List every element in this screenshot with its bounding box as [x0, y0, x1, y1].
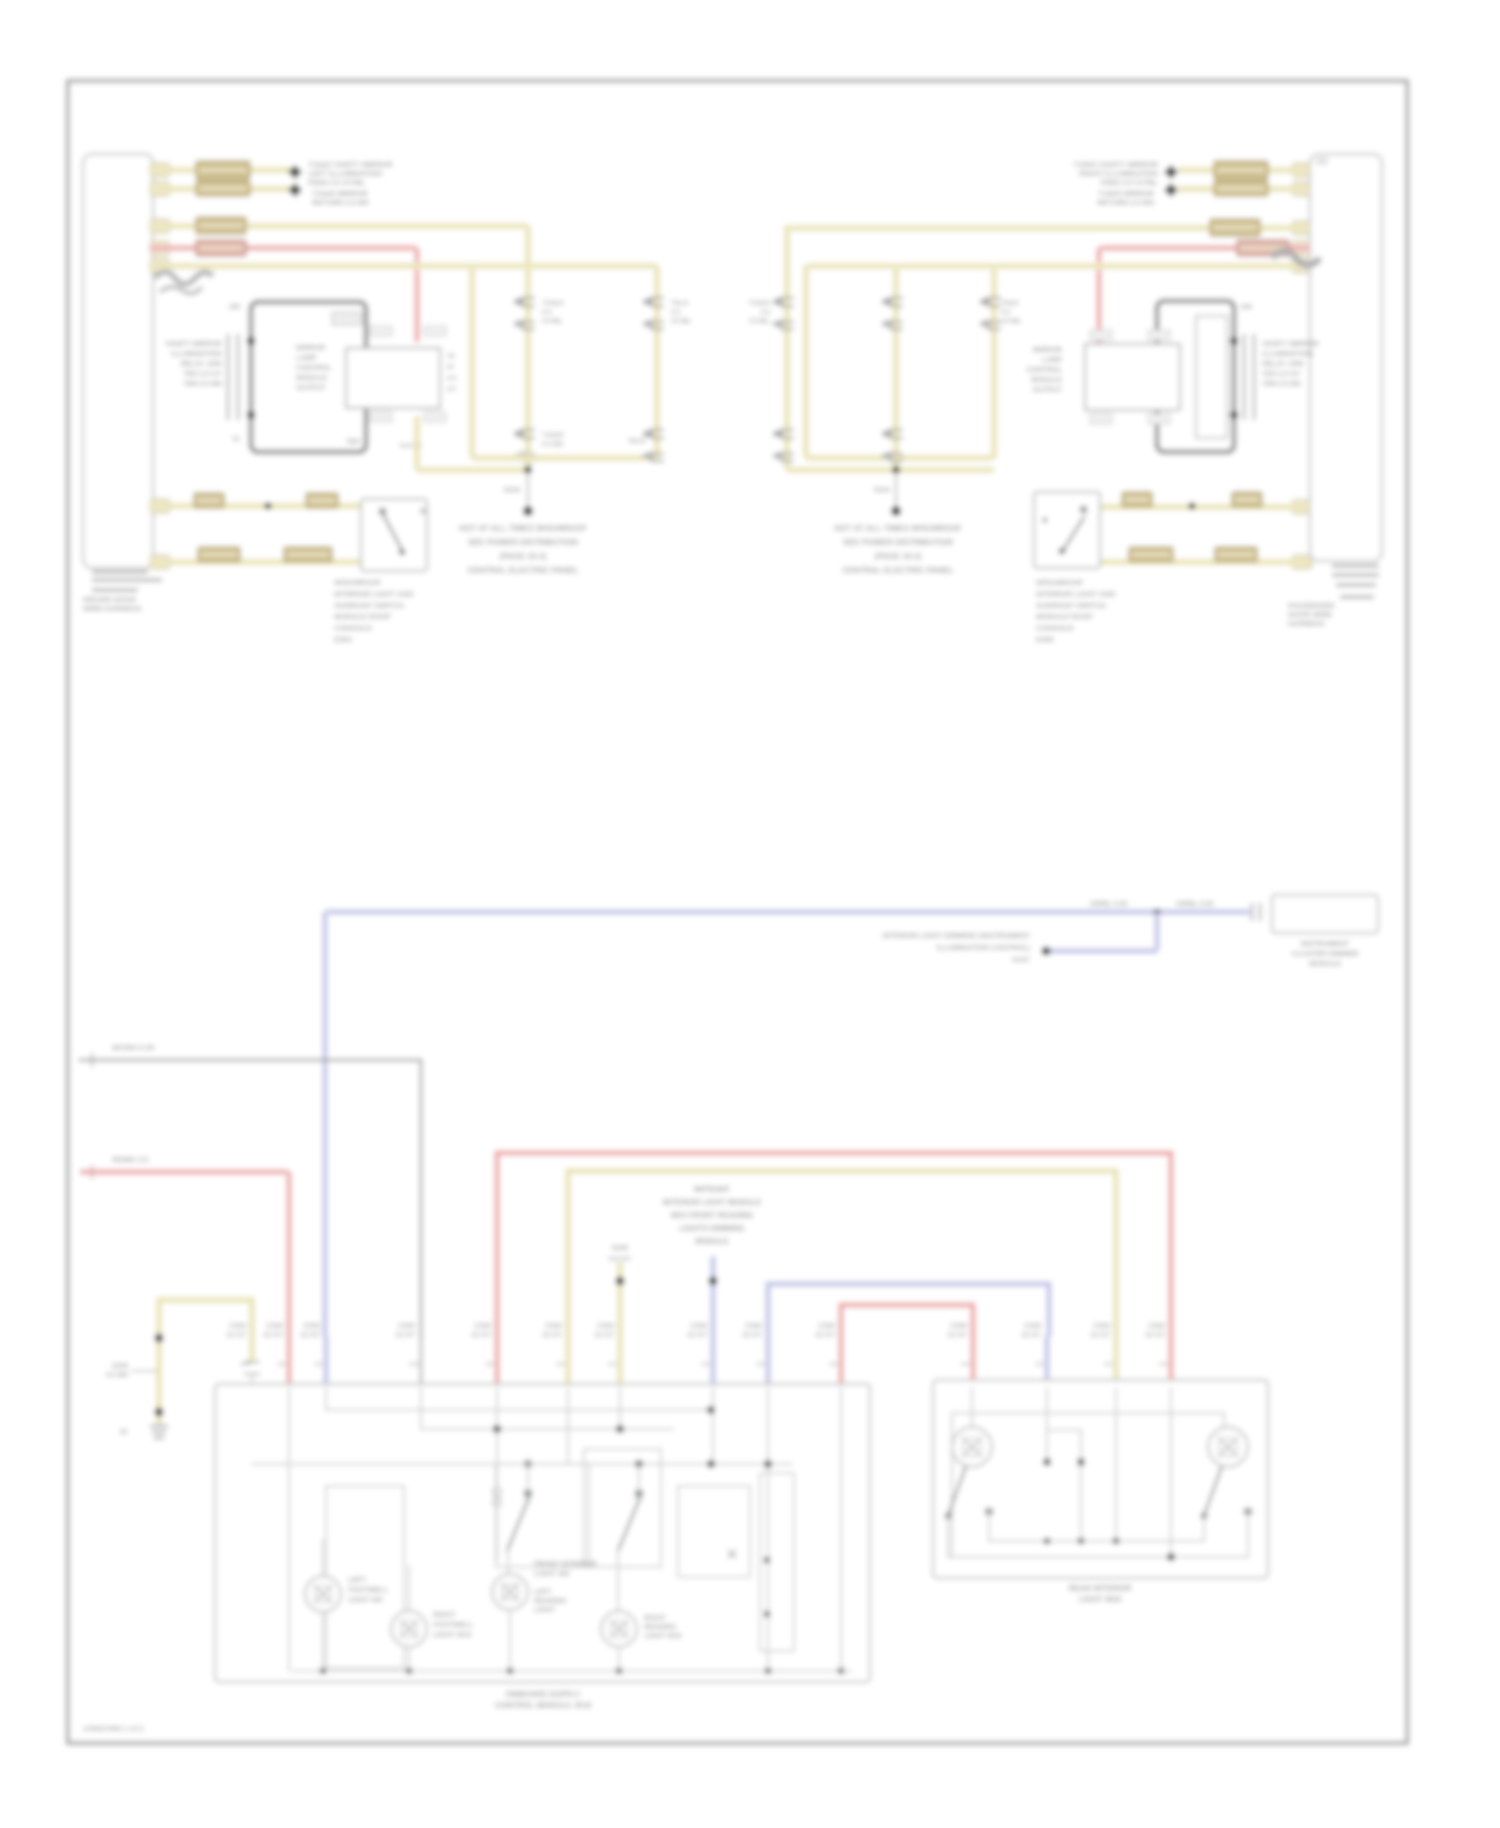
- svg-text:GY: GY: [447, 386, 457, 393]
- svg-text:RELAY J255: RELAY J255: [180, 359, 222, 368]
- svg-text:87: 87: [447, 364, 455, 371]
- svg-text:RD/BK 0.5: RD/BK 0.5: [112, 1155, 148, 1164]
- svg-text:WIRE HARNESS: WIRE HARNESS: [83, 604, 141, 613]
- svg-text:HOT AT ALL TIMES W/SUNROOF: HOT AT ALL TIMES W/SUNROOF: [834, 524, 962, 533]
- svg-text:LIGHT: LIGHT: [534, 1607, 556, 1614]
- svg-text:C540: C540: [1093, 1323, 1110, 1330]
- svg-text:12 GY: 12 GY: [542, 1332, 562, 1339]
- svg-text:FOOTWELL: FOOTWELL: [433, 1620, 474, 1629]
- svg-text:MIRROR: MIRROR: [1033, 345, 1063, 354]
- svg-text:FOOTWELL: FOOTWELL: [348, 1585, 389, 1594]
- svg-text:T10d/4: T10d/4: [748, 300, 770, 307]
- svg-text:(PAGE 10-2): (PAGE 10-2): [875, 552, 922, 561]
- svg-text:0.5 BN: 0.5 BN: [542, 441, 563, 448]
- svg-text:12 GY: 12 GY: [1090, 1332, 1110, 1339]
- svg-text:INTERIOR LIGHT AND: INTERIOR LIGHT AND: [334, 589, 414, 598]
- svg-text:FRONT INTERIOR: FRONT INTERIOR: [534, 1559, 597, 1568]
- svg-text:C540: C540: [303, 1323, 320, 1330]
- svg-text:C540: C540: [950, 1323, 967, 1330]
- svg-text:ILLUMINATION CONTROL): ILLUMINATION CONTROL): [937, 943, 1031, 952]
- svg-text:CONTROL: CONTROL: [296, 363, 332, 372]
- svg-text:OUTPUT: OUTPUT: [296, 383, 326, 392]
- svg-text:T10k/5 MIRROR: T10k/5 MIRROR: [1098, 189, 1154, 198]
- svg-text:INTERIOR LIGHT MODULE: INTERIOR LIGHT MODULE: [663, 1198, 762, 1207]
- svg-text:J29: J29: [228, 304, 240, 311]
- svg-text:RELAY J255: RELAY J255: [1262, 359, 1304, 368]
- svg-text:OUTPUT: OUTPUT: [1032, 385, 1062, 394]
- svg-text:FEED 2.5 GY/BL: FEED 2.5 GY/BL: [308, 178, 366, 187]
- svg-text:C540: C540: [745, 1323, 762, 1330]
- svg-text:INTERIOR LIGHT DIMMING (INSTR: INTERIOR LIGHT DIMMING (INSTRUMENT: [883, 931, 1031, 940]
- svg-text:MODULE: MODULE: [296, 373, 327, 382]
- svg-text:T10k/2 VANITY MIRROR: T10k/2 VANITY MIRROR: [1073, 160, 1158, 169]
- svg-text:MODULE ROOF: MODULE ROOF: [1036, 612, 1093, 621]
- svg-text:CENTRAL ELECTRIC PANEL: CENTRAL ELECTRIC PANEL: [842, 566, 954, 575]
- svg-text:T8/6 0.5 BN: T8/6 0.5 BN: [1262, 379, 1301, 388]
- svg-text:30: 30: [447, 353, 455, 360]
- svg-text:GR/BL 0.35: GR/BL 0.35: [1176, 901, 1213, 908]
- svg-text:T6d/2: T6d/2: [1001, 300, 1019, 307]
- svg-text:T10a/5 MIRROR: T10a/5 MIRROR: [312, 189, 368, 198]
- svg-text:12 GY: 12 GY: [1145, 1332, 1165, 1339]
- svg-text:T6c/2: T6c/2: [671, 300, 689, 307]
- svg-text:C540: C540: [229, 1323, 246, 1330]
- svg-text:12 GY: 12 GY: [742, 1332, 762, 1339]
- svg-text:INSTRUMENT: INSTRUMENT: [1301, 939, 1350, 948]
- svg-text:0.5: 0.5: [542, 309, 552, 316]
- svg-text:S244: S244: [874, 487, 890, 494]
- svg-text:LIGHT W19: LIGHT W19: [644, 1633, 681, 1640]
- svg-text:LIGHT W10: LIGHT W10: [433, 1630, 471, 1639]
- svg-text:READING: READING: [644, 1624, 677, 1631]
- svg-text:LEFT: LEFT: [348, 1575, 367, 1584]
- svg-text:0.5 BN: 0.5 BN: [106, 1372, 128, 1379]
- svg-text:J29: J29: [1240, 304, 1252, 311]
- svg-text:REAR INTERIOR: REAR INTERIOR: [1068, 1584, 1131, 1593]
- svg-text:CLUSTER DIMMER: CLUSTER DIMMER: [1292, 949, 1360, 958]
- svg-text:0.5 GY: 0.5 GY: [609, 1254, 632, 1263]
- svg-text:ONBOARD SUPPLY: ONBOARD SUPPLY: [506, 1690, 581, 1699]
- svg-text:BK/WH 0.35: BK/WH 0.35: [112, 1043, 154, 1052]
- svg-text:T6c/5: T6c/5: [628, 438, 646, 445]
- svg-text:0.5: 0.5: [447, 375, 457, 382]
- svg-text:C540: C540: [690, 1323, 707, 1330]
- svg-text:T8/3 2.5 GY: T8/3 2.5 GY: [183, 369, 222, 378]
- svg-text:12 GY: 12 GY: [947, 1332, 967, 1339]
- svg-text:READING: READING: [534, 1598, 567, 1605]
- svg-text:GR/BL 0.35: GR/BL 0.35: [1090, 901, 1127, 908]
- svg-text:MODULE: MODULE: [1309, 959, 1341, 968]
- svg-text:RIGHT ILLUMINATION: RIGHT ILLUMINATION: [1079, 169, 1158, 178]
- svg-text:INTERIOR LIGHT AND: INTERIOR LIGHT AND: [1036, 589, 1116, 598]
- svg-text:LEFT ILLUMINATION: LEFT ILLUMINATION: [308, 169, 382, 178]
- svg-text:E395: E395: [1036, 635, 1055, 644]
- svg-text:0.5: 0.5: [761, 309, 771, 316]
- svg-text:GY/BL: GY/BL: [671, 318, 692, 325]
- svg-text:C540: C540: [1148, 1323, 1165, 1330]
- svg-text:LAMP: LAMP: [296, 353, 317, 362]
- svg-text:GY/BL: GY/BL: [542, 318, 563, 325]
- svg-text:LAMP: LAMP: [1042, 355, 1063, 364]
- svg-text:MIRROR: MIRROR: [296, 343, 326, 352]
- svg-text:T8/5: T8/5: [346, 439, 360, 446]
- svg-text:81: 81: [120, 1429, 128, 1436]
- svg-text:SEE POWER DISTRIBUTION: SEE POWER DISTRIBUTION: [843, 538, 953, 547]
- svg-text:0.5: 0.5: [671, 309, 681, 316]
- svg-text:DRIVER DOOR: DRIVER DOOR: [83, 595, 137, 604]
- svg-text:12 GY: 12 GY: [471, 1332, 491, 1339]
- svg-text:LIGHT W43: LIGHT W43: [1079, 1595, 1122, 1604]
- svg-text:SUNROOF SWITCH: SUNROOF SWITCH: [1036, 601, 1106, 610]
- svg-text:C540: C540: [474, 1323, 491, 1330]
- svg-text:LEFT: LEFT: [534, 1589, 552, 1596]
- svg-text:PASSENGER: PASSENGER: [1288, 601, 1335, 610]
- svg-text:W/SUNROOF: W/SUNROOF: [334, 578, 382, 587]
- svg-text:LIGHT W6: LIGHT W6: [534, 1569, 569, 1578]
- svg-text:C540: C540: [818, 1323, 835, 1330]
- svg-text:HOT AT ALL TIMES W/SUNROOF: HOT AT ALL TIMES W/SUNROOF: [459, 524, 587, 533]
- svg-text:SEE POWER DISTRIBUTION: SEE POWER DISTRIBUTION: [468, 538, 578, 547]
- svg-text:12 GY: 12 GY: [815, 1332, 835, 1339]
- svg-text:12 GY: 12 GY: [1021, 1332, 1041, 1339]
- svg-text:12 GY: 12 GY: [226, 1332, 246, 1339]
- svg-text:W/FRONT: W/FRONT: [694, 1185, 731, 1194]
- svg-text:T10a/2 VANITY MIRROR: T10a/2 VANITY MIRROR: [308, 160, 393, 169]
- svg-text:T10b/4: T10b/4: [542, 300, 564, 307]
- svg-text:12 GY: 12 GY: [263, 1332, 283, 1339]
- svg-text:T8/3 2.5 GY: T8/3 2.5 GY: [1262, 369, 1301, 378]
- svg-text:A39027950 1 of 2: A39027950 1 of 2: [83, 1724, 143, 1733]
- svg-text:CONTROL MODULE J519: CONTROL MODULE J519: [495, 1701, 592, 1710]
- svg-text:C540: C540: [545, 1323, 562, 1330]
- svg-text:LIGHT W9: LIGHT W9: [348, 1595, 382, 1604]
- svg-text:C540: C540: [398, 1323, 415, 1330]
- svg-text:ILLUMINATION: ILLUMINATION: [171, 349, 222, 358]
- svg-text:E394: E394: [334, 635, 353, 644]
- svg-text:MODULE: MODULE: [695, 1237, 729, 1246]
- svg-text:RIGHT: RIGHT: [433, 1610, 456, 1619]
- svg-text:C540: C540: [266, 1323, 283, 1330]
- svg-text:DOOR WIRE: DOOR WIRE: [1288, 610, 1332, 619]
- svg-text:LIGHTS DIMMING: LIGHTS DIMMING: [679, 1224, 744, 1233]
- svg-text:S234: S234: [504, 487, 520, 494]
- svg-text:12 GY: 12 GY: [395, 1332, 415, 1339]
- svg-text:12 GY: 12 GY: [300, 1332, 320, 1339]
- svg-text:RETURN 2.5 BN: RETURN 2.5 BN: [312, 198, 369, 207]
- svg-text:0.5: 0.5: [1001, 309, 1011, 316]
- svg-text:ILLUMINATION: ILLUMINATION: [1262, 349, 1313, 358]
- svg-text:(PAGE 10-2): (PAGE 10-2): [500, 552, 547, 561]
- svg-text:GY/BL: GY/BL: [1001, 318, 1022, 325]
- svg-text:VANITY MIRROR: VANITY MIRROR: [165, 339, 223, 348]
- svg-text:W/SUNROOF: W/SUNROOF: [1036, 578, 1084, 587]
- svg-text:S239: S239: [112, 1363, 128, 1370]
- svg-text:RIGHT: RIGHT: [644, 1615, 667, 1622]
- svg-text:FEED 2.5 GY/BL: FEED 2.5 GY/BL: [1100, 178, 1158, 187]
- svg-text:CENTRAL ELECTRIC PANEL: CENTRAL ELECTRIC PANEL: [467, 566, 579, 575]
- svg-text:RETURN 2.5 BN: RETURN 2.5 BN: [1097, 198, 1154, 207]
- svg-text:GY/BL: GY/BL: [749, 318, 770, 325]
- svg-text:CONSOLE: CONSOLE: [334, 624, 372, 633]
- svg-text:S240: S240: [612, 1243, 629, 1252]
- svg-text:31: 31: [232, 436, 240, 443]
- svg-text:G107: G107: [1012, 955, 1030, 964]
- svg-text:12 GY: 12 GY: [687, 1332, 707, 1339]
- svg-text:T8/6 0.5 BN: T8/6 0.5 BN: [183, 379, 222, 388]
- svg-text:HARNESS: HARNESS: [1288, 619, 1325, 628]
- svg-text:CONTROL: CONTROL: [1026, 365, 1062, 374]
- svg-text:C540: C540: [1024, 1323, 1041, 1330]
- svg-text:T10b/9: T10b/9: [542, 432, 564, 439]
- svg-text:CONSOLE: CONSOLE: [1036, 624, 1074, 633]
- svg-text:MODULE: MODULE: [1031, 375, 1062, 384]
- svg-text:SUNROOF SWITCH: SUNROOF SWITCH: [334, 601, 404, 610]
- svg-text:W/O FRONT READING: W/O FRONT READING: [671, 1211, 754, 1220]
- svg-text:12 GY: 12 GY: [594, 1332, 614, 1339]
- svg-text:VANITY MIRROR: VANITY MIRROR: [1262, 339, 1320, 348]
- svg-text:MODULE ROOF: MODULE ROOF: [334, 612, 391, 621]
- svg-text:C540: C540: [597, 1323, 614, 1330]
